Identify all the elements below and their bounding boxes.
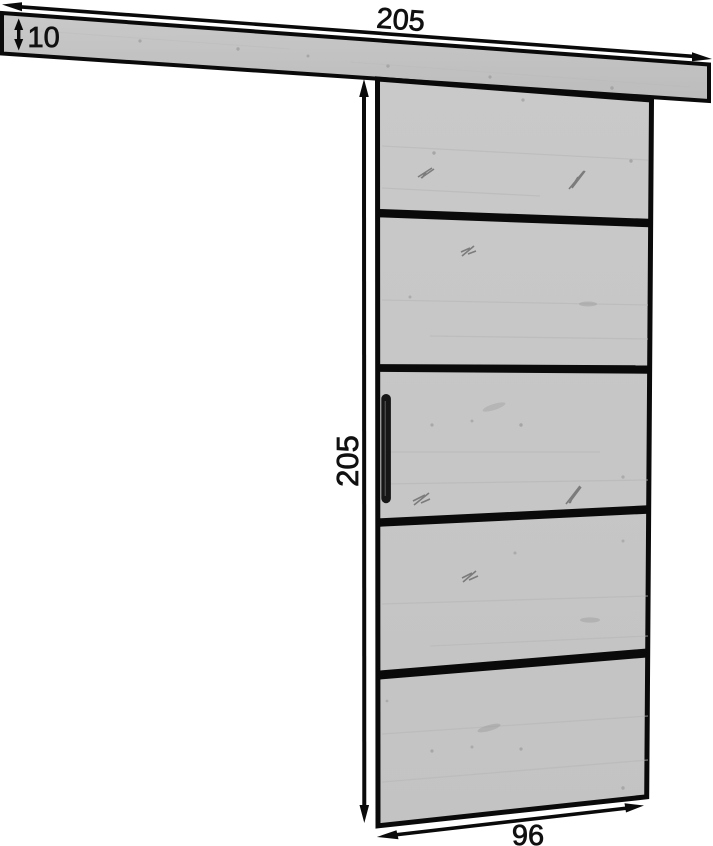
svg-text:205: 205: [330, 435, 365, 487]
svg-text:205: 205: [375, 3, 426, 38]
svg-text:10: 10: [28, 22, 60, 54]
svg-text:96: 96: [512, 820, 544, 846]
